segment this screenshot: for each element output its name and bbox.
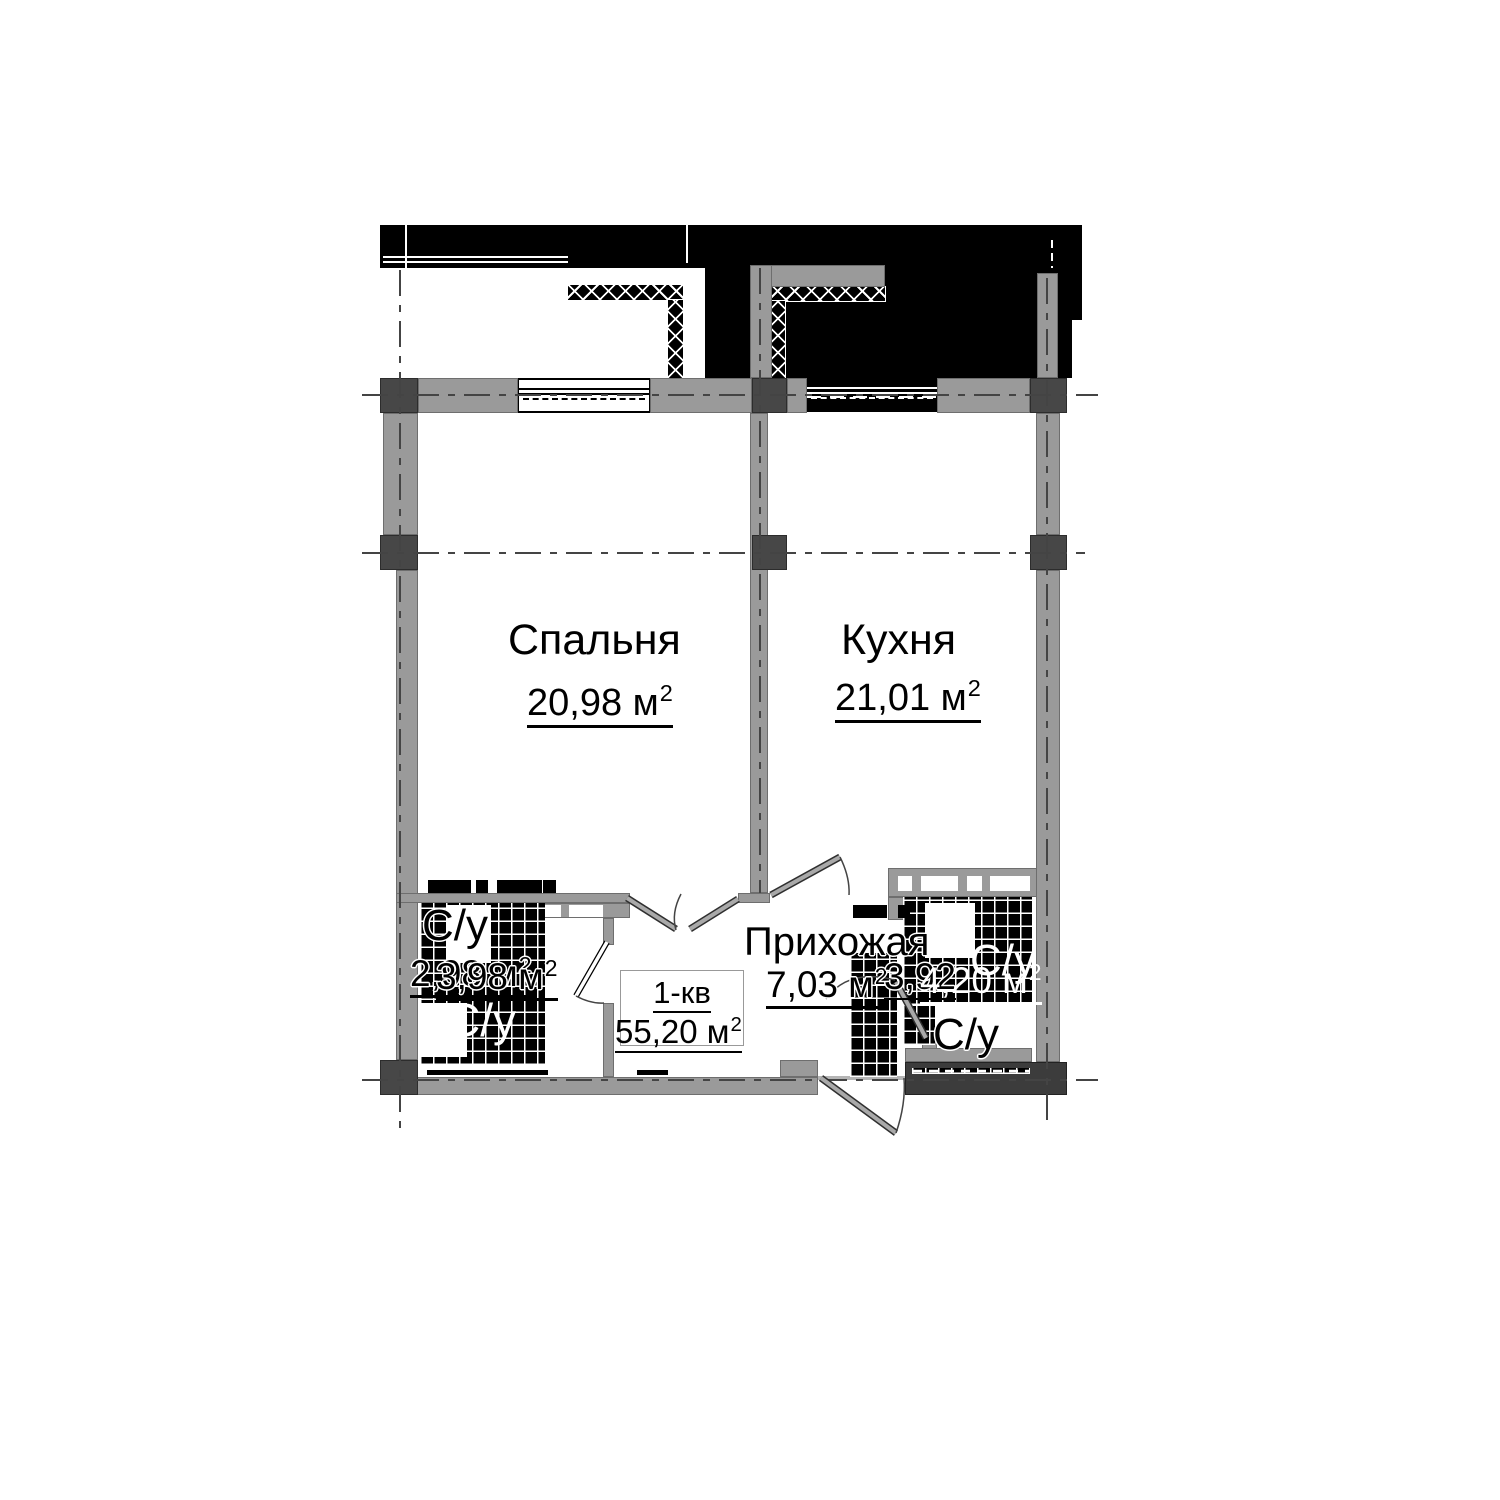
room-name: Кухня bbox=[841, 616, 956, 664]
door-leaf bbox=[821, 1078, 896, 1133]
wardrobe-block bbox=[497, 880, 542, 893]
bathroom-fixture bbox=[925, 903, 975, 958]
tile-edge-strip bbox=[427, 1070, 548, 1075]
door-swing-arc bbox=[576, 996, 604, 1003]
hatched-wall bbox=[568, 285, 683, 300]
neighbor-window-line bbox=[383, 256, 568, 258]
hallway-furniture-block bbox=[853, 905, 887, 918]
wall-niche bbox=[545, 905, 561, 917]
apartment-number: 1-кв bbox=[621, 977, 743, 1010]
bathroom-right-area-b: 4,20 м2 bbox=[920, 960, 1042, 1001]
door-jamb bbox=[603, 918, 614, 945]
wall-bottom bbox=[396, 1077, 818, 1095]
room-area-hallway: 7,03 м2 bbox=[766, 964, 888, 1005]
neighbor-window-divider bbox=[686, 225, 688, 263]
column bbox=[380, 1060, 418, 1095]
apartment-info-box: 1-кв 55,20 м2 bbox=[620, 970, 744, 1046]
wall-right bbox=[1036, 413, 1060, 535]
wardrobe-block bbox=[543, 880, 556, 893]
hatched-wall bbox=[771, 301, 785, 378]
neighbor-window-divider bbox=[405, 225, 407, 268]
wall-niche bbox=[967, 876, 982, 891]
wall-top bbox=[787, 378, 807, 413]
apartment-total-area: 55,20 м2 bbox=[615, 1014, 737, 1050]
door-leaf bbox=[576, 942, 607, 996]
wall-bedroom-kitchen-divider bbox=[750, 413, 768, 893]
tile-edge-strip bbox=[637, 1070, 668, 1075]
wall-niche bbox=[990, 876, 1030, 891]
floor-plan: Спальня 20,98 м2 Кухня 21,01 м2 Прихожая… bbox=[0, 0, 1500, 1500]
wall-left bbox=[383, 413, 418, 535]
room-area-bedroom: 20,98 м2 bbox=[527, 681, 673, 724]
column bbox=[1030, 535, 1067, 570]
column bbox=[752, 378, 787, 413]
neighbor-window-line bbox=[383, 261, 568, 263]
door-leaf bbox=[627, 898, 738, 929]
window-bedroom bbox=[518, 378, 650, 413]
hatched-wall bbox=[668, 300, 683, 378]
room-label-bedroom: Спальня bbox=[508, 618, 681, 663]
wardrobe-block bbox=[476, 880, 488, 893]
wall-segment bbox=[750, 265, 772, 378]
door-swing-arc bbox=[896, 1078, 904, 1133]
tile-area-bathroom-right-lower bbox=[903, 1005, 935, 1045]
wall-divider-cap bbox=[738, 893, 770, 903]
column bbox=[380, 378, 418, 413]
wall-top bbox=[650, 378, 752, 413]
hatched-wall bbox=[772, 287, 885, 301]
wall-niche bbox=[898, 876, 912, 891]
wall-corridor-bathroom bbox=[603, 1003, 614, 1077]
room-name: Спальня bbox=[508, 616, 681, 664]
door-leaf bbox=[771, 857, 840, 895]
wall-top bbox=[418, 378, 518, 413]
bathroom-left-label-bottom: С/у bbox=[447, 996, 516, 1044]
area-superscript: 2 bbox=[968, 675, 981, 701]
bathroom-right-label-bottom: С/у bbox=[933, 1012, 999, 1058]
bathroom-left-label-top: С/у bbox=[422, 903, 488, 949]
area-value: 20,98 м bbox=[527, 682, 659, 724]
wardrobe-block bbox=[428, 880, 471, 893]
area-value: 7,03 м bbox=[766, 964, 874, 1005]
column bbox=[1030, 378, 1067, 413]
room-area-kitchen: 21,01 м2 bbox=[835, 676, 981, 719]
area-value: 21,01 м bbox=[835, 677, 967, 719]
door-swing-arc bbox=[674, 894, 681, 930]
bathroom-left-area-b: 3,98 м2 bbox=[436, 956, 558, 997]
area-superscript: 2 bbox=[660, 680, 673, 706]
column bbox=[380, 535, 418, 570]
entry-door-jamb bbox=[780, 1060, 818, 1077]
wall-niche bbox=[921, 876, 958, 891]
door-swing-arc bbox=[840, 857, 849, 895]
wall-niche bbox=[569, 905, 603, 917]
tile-edge-strip bbox=[912, 1068, 1030, 1074]
wall-segment bbox=[1037, 273, 1058, 378]
room-label-kitchen: Кухня bbox=[841, 618, 956, 663]
wall-bottom-dark bbox=[905, 1062, 1067, 1095]
window-kitchen bbox=[807, 378, 937, 412]
hallway-furniture-block bbox=[898, 905, 910, 918]
column bbox=[752, 535, 787, 570]
wall-top bbox=[937, 378, 1030, 413]
